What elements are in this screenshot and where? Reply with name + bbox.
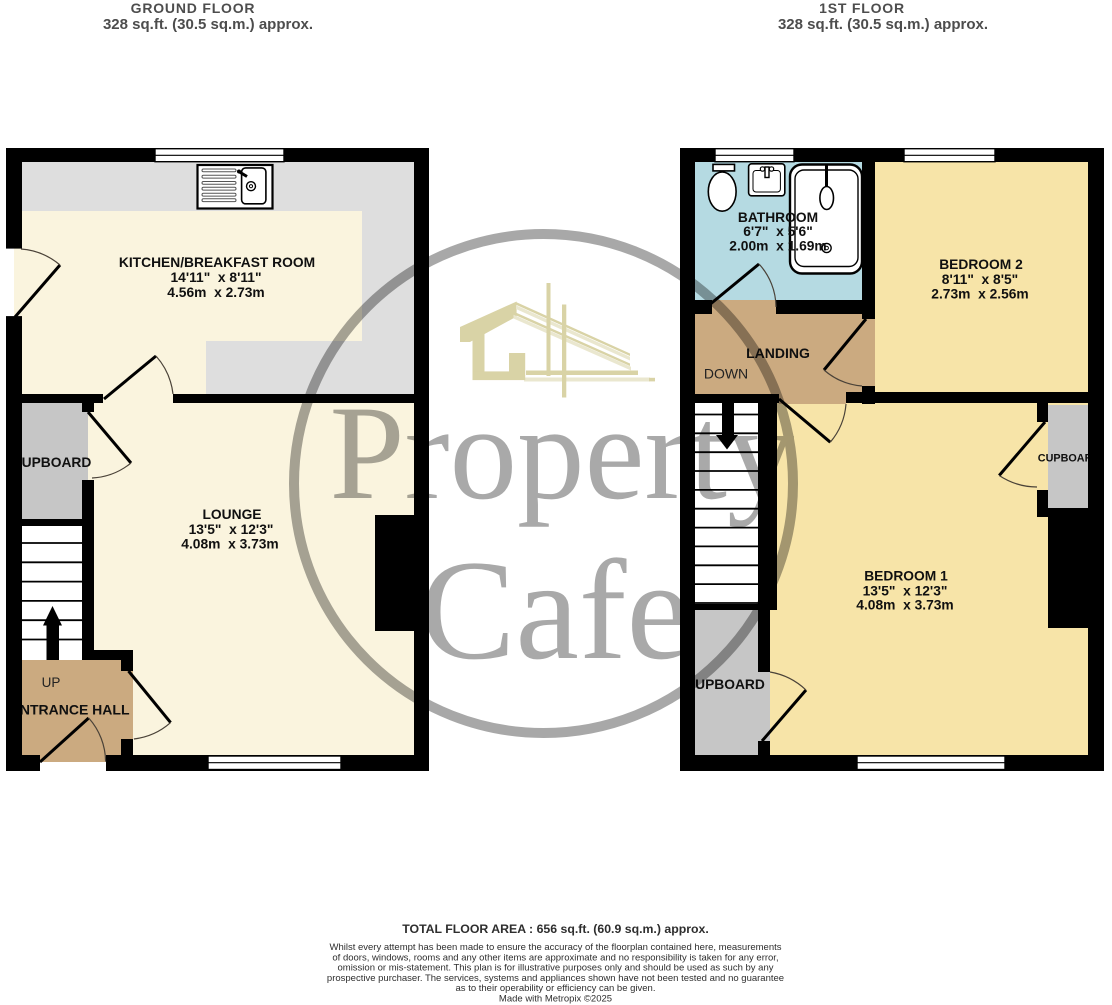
svg-text:GROUND FLOOR: GROUND FLOOR (131, 0, 256, 16)
svg-text:TOTAL FLOOR AREA : 656 sq.ft.: TOTAL FLOOR AREA : 656 sq.ft. (60.9 sq.m… (402, 922, 709, 936)
svg-text:KITCHEN/BREAKFAST ROOM: KITCHEN/BREAKFAST ROOM (119, 255, 315, 270)
svg-text:BATHROOM: BATHROOM (738, 210, 818, 225)
svg-text:8'11" x 8'5": 8'11" x 8'5" (942, 272, 1018, 287)
svg-text:2.00m x 1.69m: 2.00m x 1.69m (729, 239, 826, 254)
svg-text:Made with Metropix ©2025: Made with Metropix ©2025 (499, 994, 612, 1005)
svg-text:Property: Property (330, 379, 795, 528)
svg-text:13'5" x 12'3": 13'5" x 12'3" (189, 522, 274, 537)
svg-text:14'11" x 8'11": 14'11" x 8'11" (170, 270, 261, 285)
svg-text:328 sq.ft. (30.5 sq.m.) approx: 328 sq.ft. (30.5 sq.m.) approx. (778, 16, 988, 33)
svg-text:4.56m x 2.73m: 4.56m x 2.73m (167, 285, 264, 300)
svg-text:4.08m x 3.73m: 4.08m x 3.73m (856, 598, 953, 613)
svg-text:13'5" x 12'3": 13'5" x 12'3" (863, 584, 948, 599)
svg-text:1ST FLOOR: 1ST FLOOR (819, 0, 905, 16)
svg-text:BEDROOM 2: BEDROOM 2 (939, 257, 1023, 272)
svg-text:6'7" x 5'6": 6'7" x 5'6" (743, 224, 813, 239)
svg-text:CUPBOARD: CUPBOARD (12, 455, 92, 470)
svg-text:Cafe: Cafe (420, 531, 690, 689)
svg-text:LOUNGE: LOUNGE (202, 507, 261, 522)
svg-text:2.73m x 2.56m: 2.73m x 2.56m (931, 287, 1028, 302)
svg-text:ENTRANCE HALL: ENTRANCE HALL (11, 702, 130, 718)
svg-text:BEDROOM 1: BEDROOM 1 (864, 569, 948, 584)
svg-text:328 sq.ft. (30.5 sq.m.) approx: 328 sq.ft. (30.5 sq.m.) approx. (103, 16, 313, 33)
svg-text:4.08m x 3.73m: 4.08m x 3.73m (181, 537, 278, 552)
svg-text:UP: UP (42, 675, 61, 690)
